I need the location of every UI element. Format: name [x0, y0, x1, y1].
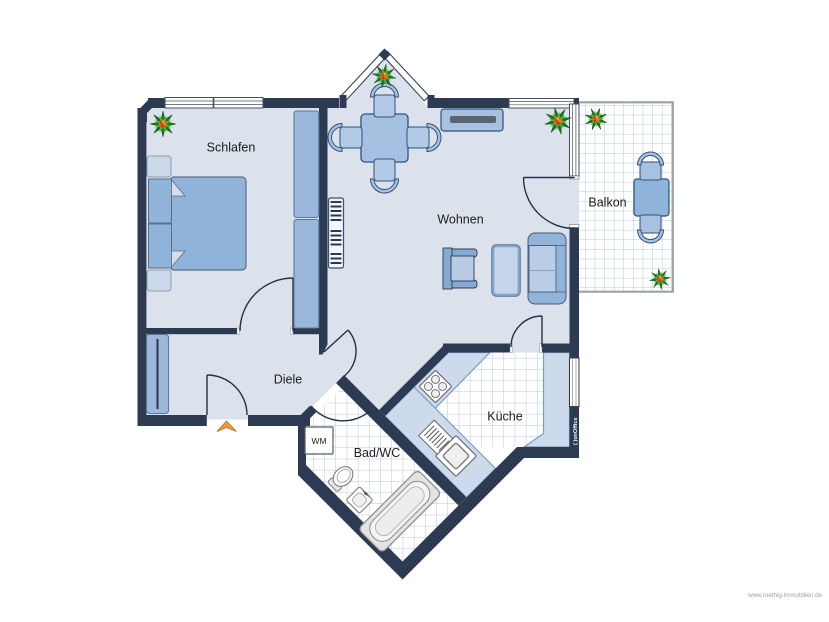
- svg-text:www.roethig-immobilien.de: www.roethig-immobilien.de: [747, 592, 822, 599]
- svg-text:WM: WM: [311, 436, 326, 446]
- svg-text:Schlafen: Schlafen: [207, 141, 256, 155]
- svg-text:Küche: Küche: [487, 410, 522, 424]
- svg-text:( )onOffice: ( )onOffice: [573, 418, 579, 446]
- svg-text:Wohnen: Wohnen: [437, 213, 483, 227]
- svg-text:Bad/WC: Bad/WC: [354, 446, 401, 460]
- svg-text:Diele: Diele: [274, 373, 303, 387]
- svg-text:Balkon: Balkon: [588, 196, 626, 210]
